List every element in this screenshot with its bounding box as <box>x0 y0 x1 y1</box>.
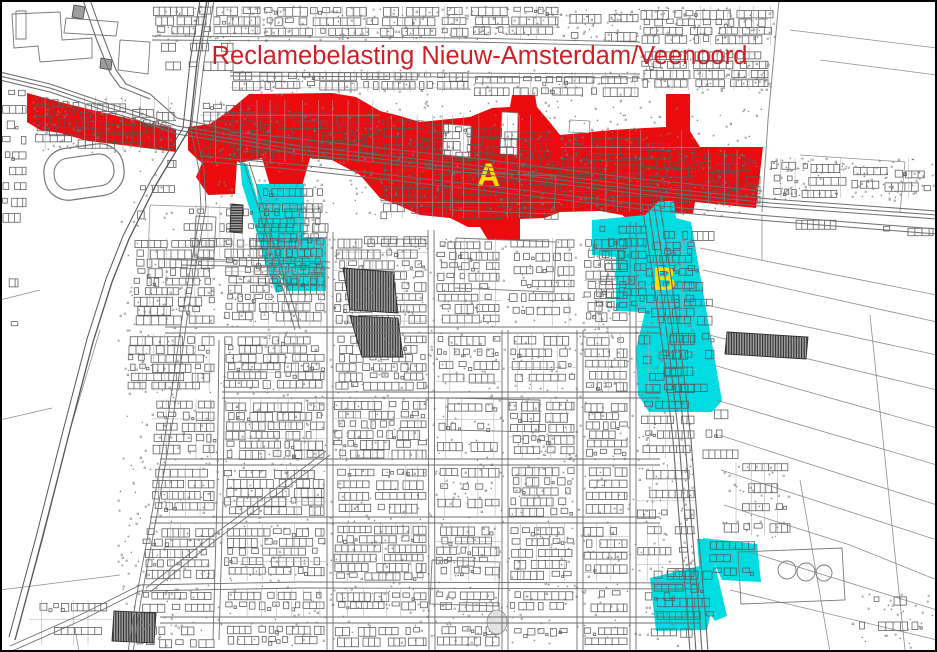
svg-text:Reclamebelasting Nieuw-Amsterd: Reclamebelasting Nieuw-Amsterdam/Veenoor… <box>212 42 748 70</box>
